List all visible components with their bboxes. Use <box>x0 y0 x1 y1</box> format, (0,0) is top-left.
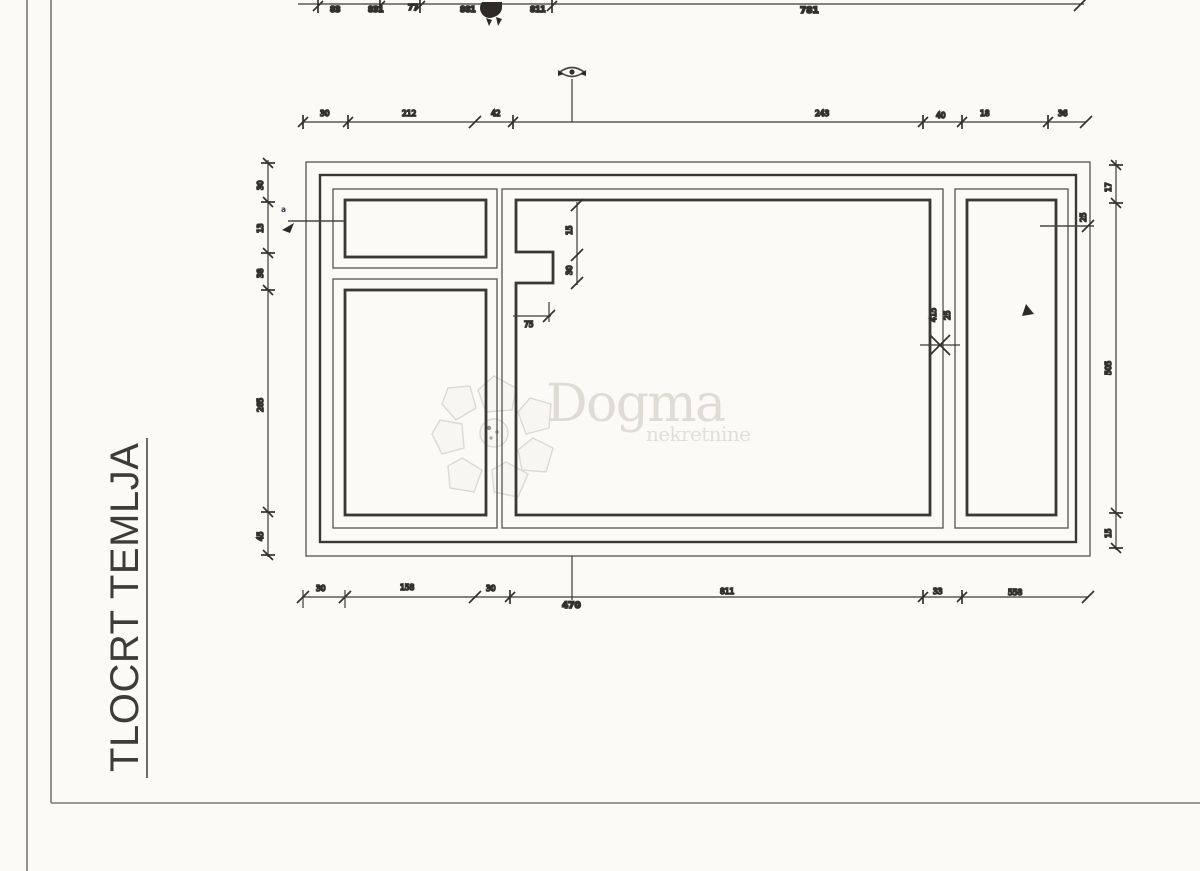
dim-label: 40 <box>936 111 946 120</box>
dim-label: 558 <box>1008 588 1023 597</box>
title-block: TLOCRT TEMLJA <box>103 438 147 778</box>
dim-label: 30 <box>256 180 265 190</box>
dim-label: 811 <box>720 587 735 596</box>
sheet-frame <box>27 0 1200 871</box>
dim-label: 45 <box>256 531 265 541</box>
dim-label: 30 <box>320 109 330 118</box>
footing-outer-rect <box>306 162 1090 556</box>
smudge-mark <box>1022 304 1034 316</box>
dim-label: 25 <box>1079 212 1088 222</box>
dim-line-bottom: 30 158 30 811 33 558 470 <box>297 556 1094 611</box>
dim-label: 781 <box>800 6 819 16</box>
dim-label: 42 <box>491 109 501 118</box>
left-leader-arrow: a <box>281 205 344 233</box>
room-top-left <box>333 189 497 268</box>
dim-line-top: 30 212 42 243 40 18 36 <box>298 109 1092 129</box>
foundation-plan-drawing: Dogma nekretnine TLOCRT TEMLJA <box>0 0 1200 871</box>
dim-label: 158 <box>400 583 415 592</box>
dim-label: 36 <box>1058 109 1068 118</box>
dim-label: 30 <box>316 584 326 593</box>
dim-label: 881 <box>460 5 476 14</box>
dim-label: 15 <box>1104 528 1113 538</box>
notch-dimensions: 15 30 75 <box>513 199 583 329</box>
dim-label: 15 <box>565 225 574 235</box>
leader-label: a <box>281 205 286 214</box>
dim-label: 811 <box>530 5 546 14</box>
dim-label: 38 <box>256 268 265 278</box>
dim-label-total: 470 <box>562 601 581 611</box>
dim-label: 505 <box>1104 360 1113 375</box>
dim-line-left: 30 13 38 265 45 <box>256 158 275 560</box>
dim-label: 83 <box>330 5 340 14</box>
room-right <box>955 189 1068 528</box>
footing-inner-rect <box>320 175 1076 542</box>
dim-label: 33 <box>933 587 943 596</box>
page-title: TLOCRT TEMLJA <box>103 442 147 772</box>
right-leader: 25 <box>1040 212 1094 232</box>
dim-label: 77 <box>408 3 418 12</box>
dim-label: 18 <box>980 109 990 118</box>
watermark-subtitle: nekretnine <box>646 422 753 446</box>
dim-label: 243 <box>815 109 830 118</box>
dim-label: 265 <box>256 397 265 412</box>
level-marker-symbol <box>558 68 586 123</box>
section-mark-symbol <box>480 2 502 26</box>
dim-label: 75 <box>524 320 534 329</box>
blueprint-sheet: Dogma nekretnine TLOCRT TEMLJA <box>0 0 1200 871</box>
dim-label: 212 <box>402 109 417 118</box>
dim-label: 13 <box>256 223 265 233</box>
watermark-flower-logo <box>432 376 553 497</box>
dim-label: 30 <box>565 265 574 275</box>
watermark: Dogma nekretnine <box>432 374 753 497</box>
dim-label: 25 <box>943 310 952 320</box>
divider-dimension-marks: 415 25 <box>920 307 960 355</box>
dim-label: 30 <box>486 584 496 593</box>
dim-label: 17 <box>1104 182 1113 192</box>
dim-line-top-partial: 83 831 77 881 811 781 <box>298 0 1086 26</box>
room-middle <box>502 189 943 528</box>
dim-label: 831 <box>368 5 384 14</box>
dim-label: 415 <box>929 307 938 322</box>
foundation-outline <box>306 162 1090 556</box>
dim-line-right: 17 505 15 <box>1104 160 1123 553</box>
